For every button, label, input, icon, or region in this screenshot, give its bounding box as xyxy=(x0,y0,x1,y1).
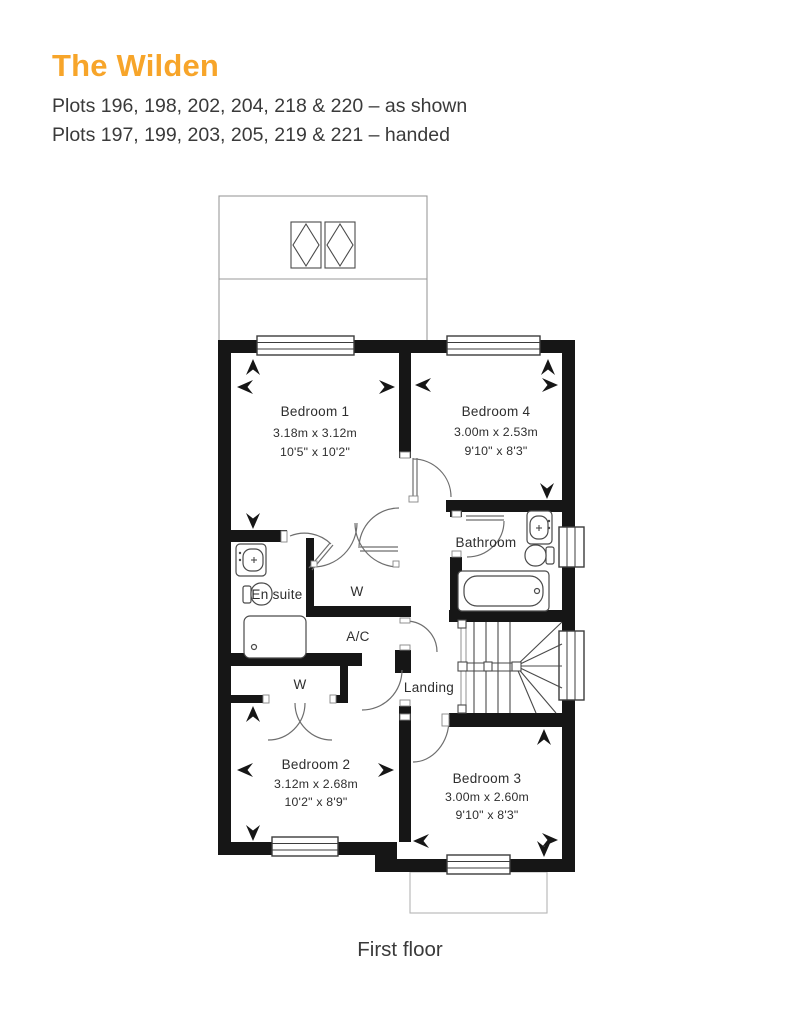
door-arc xyxy=(268,703,332,740)
bedroom3-label: Bedroom 3 xyxy=(453,771,522,786)
bedroom2-label: Bedroom 2 xyxy=(282,757,351,772)
ensuite-label: En suite xyxy=(251,587,302,602)
window-icon xyxy=(559,527,584,567)
roof-outline xyxy=(219,196,427,341)
floor-caption: First floor xyxy=(0,938,800,962)
sink-icon xyxy=(527,511,552,544)
bedroom2-imperial: 10'2" x 8'9" xyxy=(284,795,347,809)
wardrobe-bedroom2-label: W xyxy=(293,677,306,692)
window-icon xyxy=(272,837,338,856)
toilet-icon xyxy=(525,545,554,566)
bathroom-label: Bathroom xyxy=(456,535,517,550)
bedroom1-label: Bedroom 1 xyxy=(281,404,350,419)
bedroom1-imperial: 10'5" x 10'2" xyxy=(280,445,350,459)
bathtub-icon xyxy=(458,571,549,611)
window-icon xyxy=(257,336,354,355)
bedroom2-metric: 3.12m x 2.68m xyxy=(274,777,358,791)
wardrobe-top-label: W xyxy=(350,584,363,599)
door-arc xyxy=(362,670,402,710)
airing-cupboard-label: A/C xyxy=(346,629,369,644)
floorplan-page: The Wilden Plots 196, 198, 202, 204, 218… xyxy=(0,0,800,1036)
door-arc xyxy=(407,621,437,652)
bedroom4-metric: 3.00m x 2.53m xyxy=(454,425,538,439)
bedroom3-metric: 3.00m x 2.60m xyxy=(445,790,529,804)
roof-window-icon xyxy=(325,222,355,268)
window-icon xyxy=(447,336,540,355)
bedroom4-label: Bedroom 4 xyxy=(462,404,531,419)
bedroom1-metric: 3.18m x 3.12m xyxy=(273,426,357,440)
door-arc xyxy=(313,523,399,567)
staircase-icon xyxy=(458,620,562,713)
floor-plan-svg: Bedroom 1 3.18m x 3.12m 10'5" x 10'2" Be… xyxy=(0,0,800,1036)
roof-window-icon xyxy=(291,222,321,268)
door-arc xyxy=(413,458,451,497)
door-arc xyxy=(359,508,399,551)
landing-label: Landing xyxy=(404,680,454,695)
shower-icon xyxy=(244,616,306,658)
window-icon xyxy=(559,631,584,700)
porch-outline xyxy=(410,872,547,913)
bedroom3-imperial: 9'10" x 8'3" xyxy=(455,808,518,822)
sink-icon xyxy=(236,544,266,576)
window-icon xyxy=(447,855,510,874)
bedroom4-imperial: 9'10" x 8'3" xyxy=(464,444,527,458)
